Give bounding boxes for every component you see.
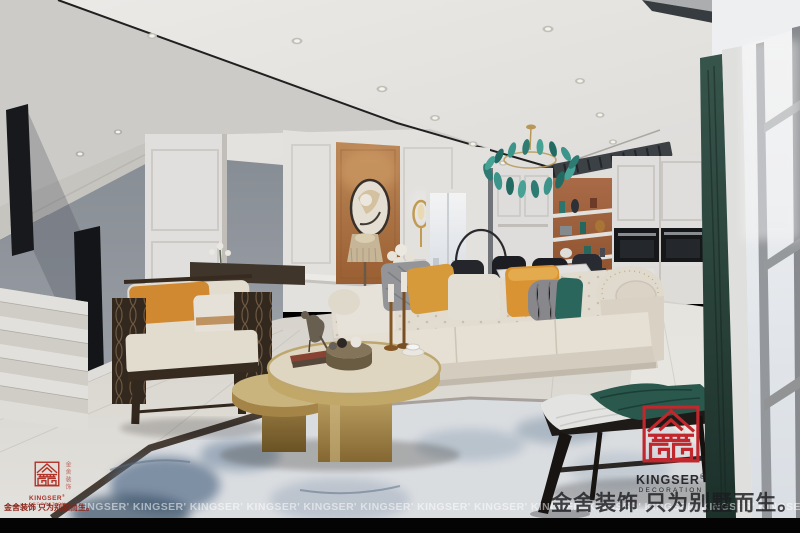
screenshot-root: KINGSER' KINGSER' KINGSER' KINGSER' KING…	[0, 0, 800, 533]
interior-photo: KINGSER' KINGSER' KINGSER' KINGSER' KING…	[0, 0, 800, 518]
bottom-black-bar	[0, 518, 800, 533]
vignette	[0, 0, 800, 518]
living-room-scene	[0, 0, 800, 518]
